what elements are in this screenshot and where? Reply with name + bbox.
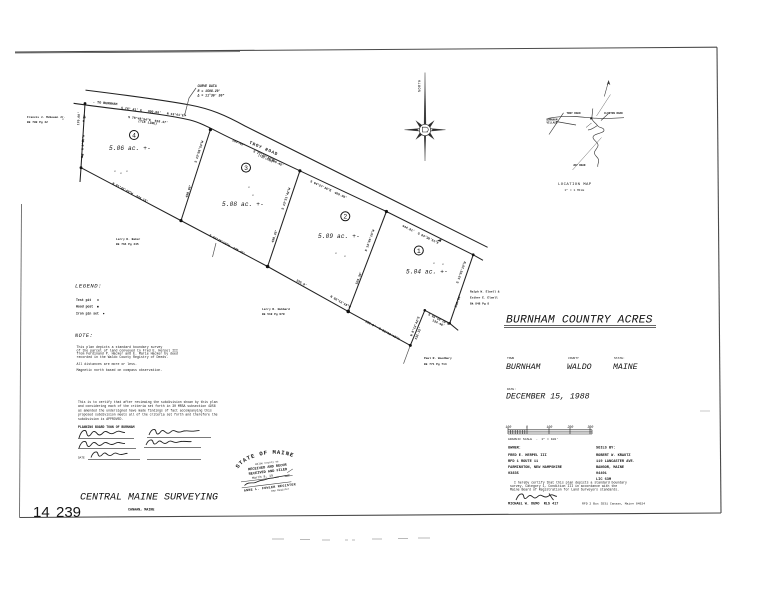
svg-text:x: x — [442, 263, 444, 266]
svg-text:Δ = 11°30' 30": Δ = 11°30' 30" — [197, 94, 225, 98]
svg-text:1" = 1 MILE: 1" = 1 MILE — [565, 188, 585, 192]
svg-text:MAINE: MAINE — [613, 363, 638, 372]
svg-text:0: 0 — [526, 425, 528, 429]
svg-text:Iron pin set ●: Iron pin set ● — [76, 311, 105, 315]
svg-text:Bk 518 Pg 878: Bk 518 Pg 878 — [262, 312, 285, 316]
svg-text:x: x — [335, 252, 337, 255]
svg-text:WALDO: WALDO — [567, 363, 592, 372]
svg-text:x: x — [433, 262, 435, 265]
svg-text:GRAPHIC SCALE - 1" = 100': GRAPHIC SCALE - 1" = 100' — [508, 437, 558, 441]
svg-text:2: 2 — [343, 214, 347, 221]
svg-text:Larry D. Baker: Larry D. Baker — [116, 237, 141, 241]
svg-text:Larry R. Hubbard: Larry R. Hubbard — [262, 307, 290, 311]
svg-text:R = 1508.29': R = 1508.29' — [198, 89, 221, 93]
svg-text:BURNHAM COUNTRY ACRES: BURNHAM COUNTRY ACRES — [506, 315, 653, 327]
svg-text:LEGEND:: LEGEND: — [75, 283, 102, 290]
svg-text:TOWN: TOWN — [507, 357, 514, 360]
svg-text:DECEMBER 15, 1988: DECEMBER 15, 1988 — [506, 393, 590, 402]
svg-text:Ralph W. Elwell &: Ralph W. Elwell & — [470, 290, 500, 294]
svg-text:Francis J. McGowan Jr.: Francis J. McGowan Jr. — [27, 115, 65, 119]
svg-text:x: x — [126, 170, 128, 173]
svg-text:Test pit x: Test pit x — [76, 298, 99, 302]
svg-text:Bk 771 Pg 714: Bk 771 Pg 714 — [424, 362, 447, 366]
svg-text:RFD 2 Box 3531 Canaan, Maine 0: RFD 2 Box 3531 Canaan, Maine 04924 — [582, 502, 645, 506]
svg-text:CANAAN, MAINE: CANAAN, MAINE — [128, 509, 154, 513]
svg-text:Wood post ■: Wood post ■ — [76, 305, 99, 309]
svg-text:SOILS BY:: SOILS BY: — [596, 447, 615, 451]
svg-text:recorded in the Waldo County R: recorded in the Waldo County Registry of… — [77, 355, 169, 359]
svg-text:BANGOR, MAINE: BANGOR, MAINE — [596, 466, 625, 470]
svg-text:x: x — [252, 194, 254, 197]
svg-text:ROBERT W. KRAUTZ: ROBERT W. KRAUTZ — [596, 454, 631, 458]
svg-text:Esther E. Elwell: Esther E. Elwell — [470, 296, 498, 300]
svg-text:5.06 ac. +-: 5.06 ac. +- — [109, 145, 151, 152]
svg-text:CURVE DATA: CURVE DATA — [198, 84, 217, 88]
svg-text:DATE: DATE — [78, 457, 85, 460]
svg-text:3: 3 — [244, 165, 248, 172]
svg-text:FRED E. HERPEL III: FRED E. HERPEL III — [508, 454, 547, 458]
svg-text:Bk 848 Pg 8: Bk 848 Pg 8 — [470, 302, 489, 306]
svg-text:STATE:: STATE: — [614, 357, 625, 360]
svg-text:14: 14 — [33, 504, 50, 521]
svg-text:MICHAEL W. DEMO RLS 417: MICHAEL W. DEMO RLS 417 — [508, 503, 558, 507]
svg-text:Bk 700 Pg 42: Bk 700 Pg 42 — [27, 120, 48, 124]
svg-text:CENTRAL MAINE SURVEYING: CENTRAL MAINE SURVEYING — [80, 493, 218, 504]
svg-text:JOY ROAD: JOY ROAD — [573, 164, 586, 167]
svg-text:300: 300 — [588, 425, 594, 429]
svg-text:4: 4 — [132, 132, 136, 139]
svg-text:NORTH: NORTH — [419, 79, 423, 92]
svg-text:Magnetic north based on compas: Magnetic north based on compass observat… — [77, 368, 163, 372]
svg-text:LOCATION MAP: LOCATION MAP — [558, 183, 592, 187]
svg-text:119 LANCASTER AVE.: 119 LANCASTER AVE. — [596, 460, 635, 464]
svg-text:Bk 764 Pg 445: Bk 764 Pg 445 — [116, 242, 139, 246]
svg-text:Paul R. Woodbury: Paul R. Woodbury — [424, 356, 452, 360]
svg-text:100: 100 — [547, 425, 553, 429]
svg-text:subdivision is APPROVED.: subdivision is APPROVED. — [78, 417, 123, 421]
svg-text:FARMINGTON, NEW HAMPSHIRE: FARMINGTON, NEW HAMPSHIRE — [508, 466, 563, 470]
svg-text:COUNTY: COUNTY — [568, 357, 579, 360]
svg-text:200: 200 — [568, 425, 574, 429]
svg-text:DATE:: DATE: — [507, 388, 516, 391]
svg-text:All distances are more or less: All distances are more or less. — [77, 362, 138, 366]
svg-text:PLANNING BOARD TOWN OF BURNHAM: PLANNING BOARD TOWN OF BURNHAM — [78, 425, 135, 429]
svg-text:239: 239 — [56, 504, 81, 521]
svg-text:x: x — [114, 170, 116, 173]
svg-text:03835: 03835 — [508, 472, 519, 476]
svg-text:x: x — [248, 186, 250, 189]
svg-text:100: 100 — [506, 425, 512, 429]
svg-text:VILLAGE: VILLAGE — [547, 122, 558, 125]
svg-text:OWNER:: OWNER: — [508, 447, 521, 451]
svg-text:BURNHAM: BURNHAM — [506, 363, 541, 372]
svg-text:RFD 1 ROUTE 11: RFD 1 ROUTE 11 — [508, 460, 538, 464]
svg-text:CLINTON ROAD: CLINTON ROAD — [604, 112, 623, 115]
svg-text:5.09 ac. +-: 5.09 ac. +- — [318, 233, 360, 240]
svg-text:5.08 ac. +-: 5.08 ac. +- — [222, 201, 264, 208]
svg-text:NOTE:: NOTE: — [75, 333, 93, 339]
svg-text:TROY ROAD: TROY ROAD — [567, 112, 581, 115]
svg-text:5.04 ac. +-: 5.04 ac. +- — [406, 269, 448, 276]
svg-text:x: x — [120, 172, 122, 175]
svg-text:Maine Board of Registration fo: Maine Board of Registration for Land Sur… — [510, 488, 619, 492]
svg-text:x: x — [344, 255, 346, 258]
svg-text:1: 1 — [417, 248, 421, 255]
svg-text:04401: 04401 — [596, 472, 607, 476]
